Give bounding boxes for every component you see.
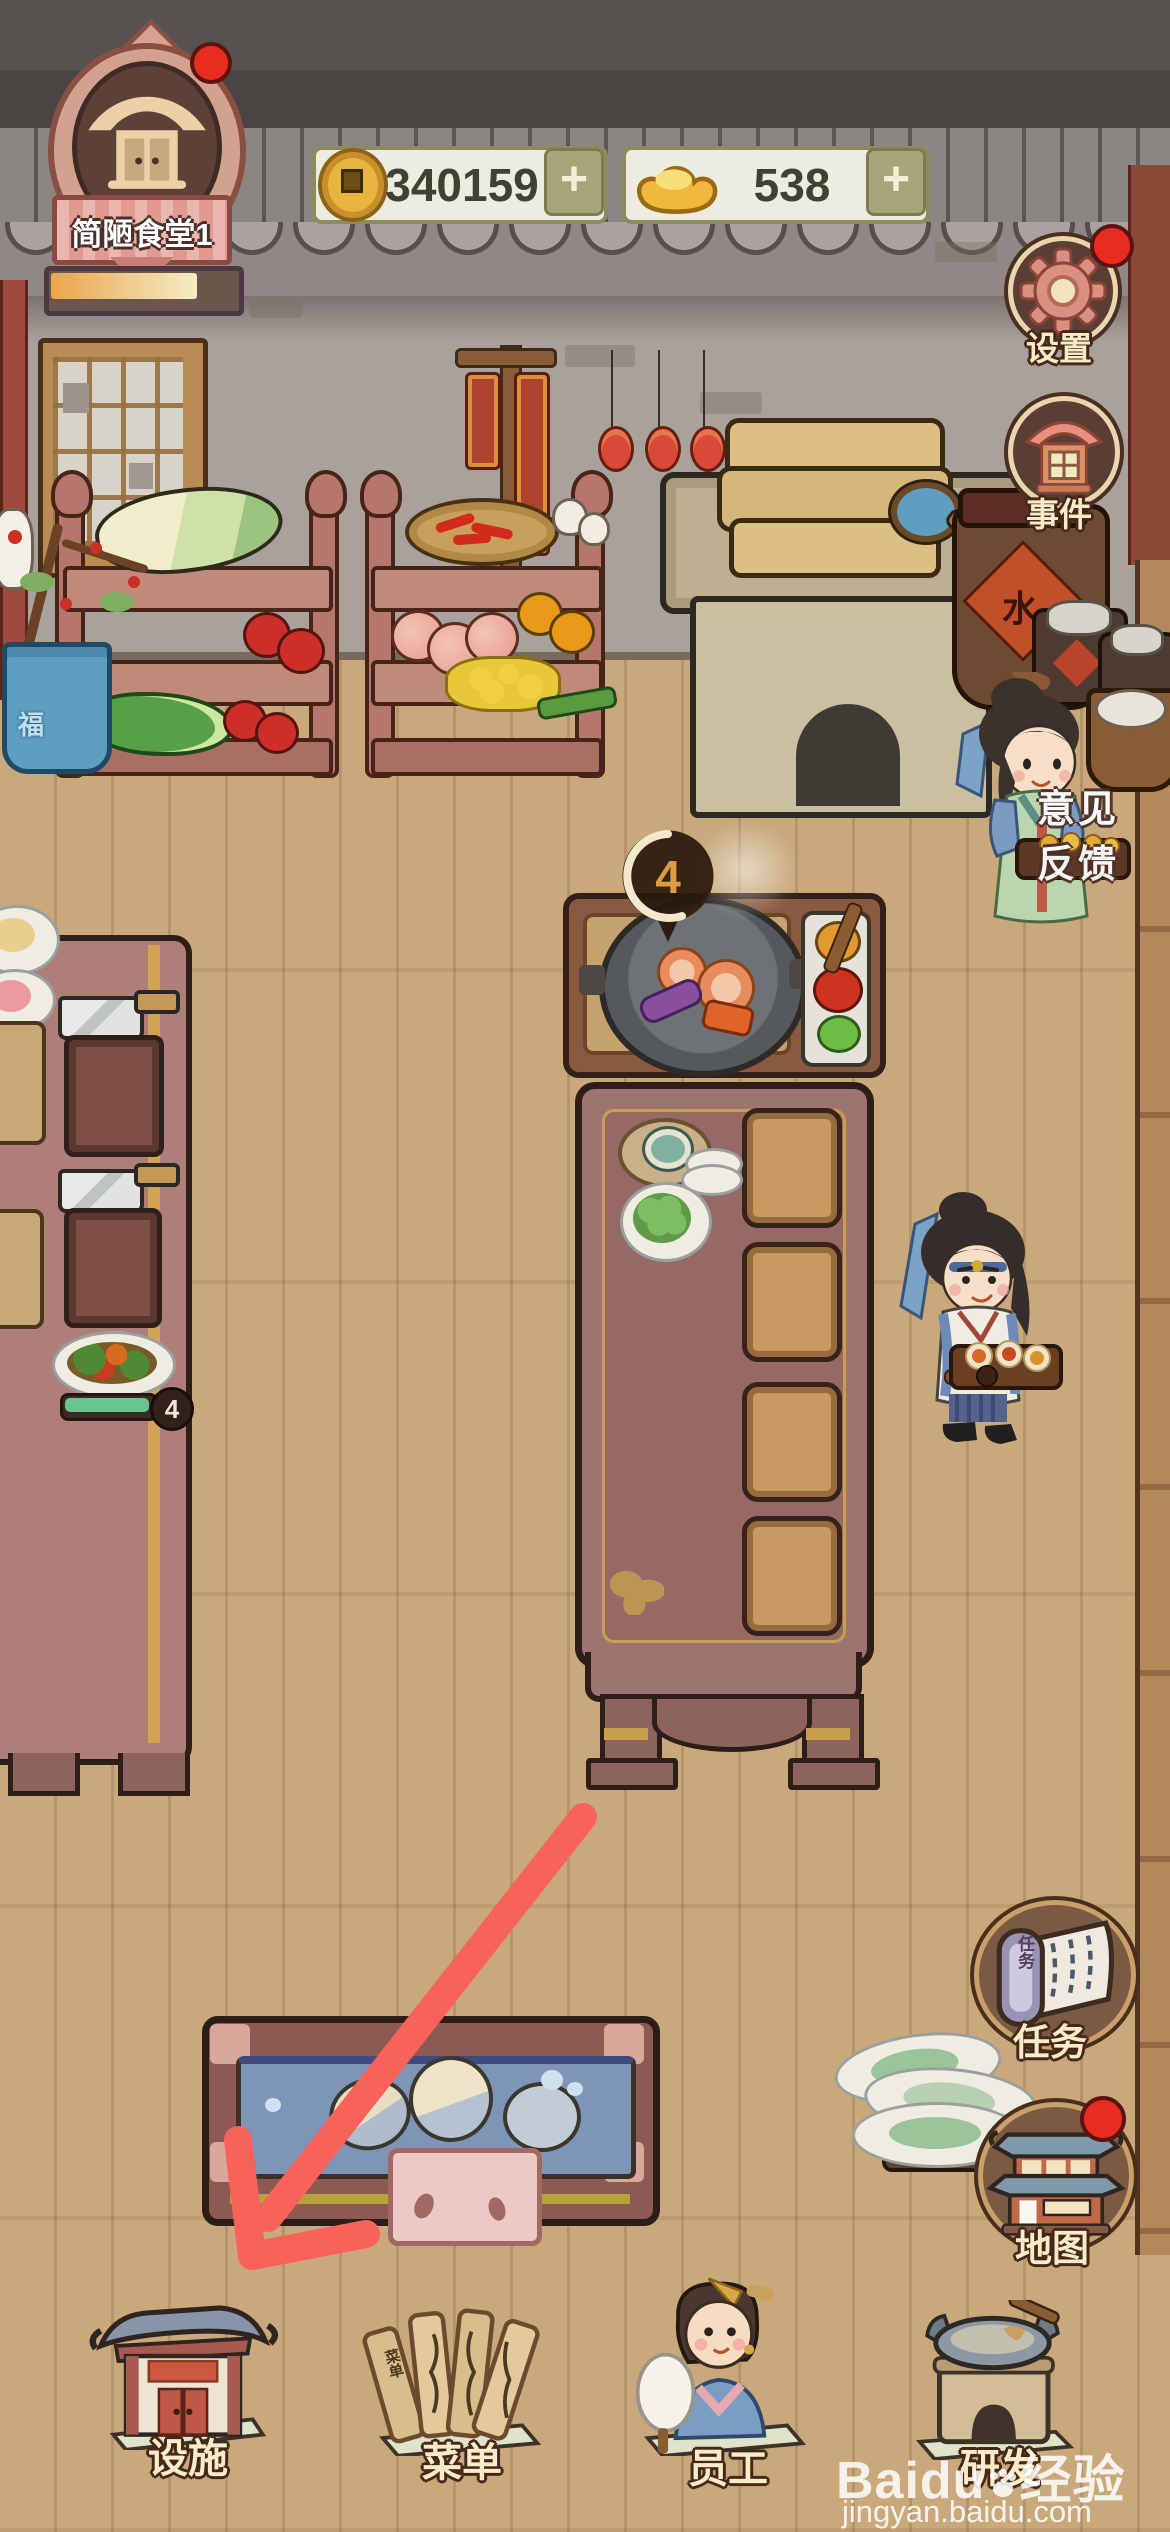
lantern-string — [658, 350, 660, 428]
green-food — [633, 1193, 691, 1243]
feedback-tab[interactable]: 意见 反馈 — [1028, 778, 1128, 882]
map-label: 地图 — [998, 2218, 1106, 2272]
broken-pane — [63, 383, 89, 413]
lantern-string — [611, 350, 613, 428]
condiment-tray — [801, 911, 871, 1067]
table-leg — [8, 1753, 80, 1796]
red-pepper — [434, 512, 475, 534]
salt-top — [1046, 600, 1112, 636]
towel — [388, 2148, 542, 2246]
wall-brick — [250, 300, 302, 318]
raw-meat — [0, 980, 31, 1012]
side-board — [0, 1021, 46, 1145]
game-screen: { "hud": { "restaurant": {"name": "简陋食堂1… — [0, 0, 1170, 2532]
wok-handle — [579, 965, 605, 995]
seat-cushion — [742, 1382, 842, 1502]
veggie-dish — [620, 1182, 712, 1262]
wall-brick — [935, 242, 997, 262]
gold-ingot-icon — [630, 150, 722, 214]
condiment-bowl-green — [817, 1015, 861, 1053]
table-foot — [788, 1758, 880, 1790]
settings-label: 设置 — [1014, 322, 1104, 370]
soaking-plate — [322, 2069, 419, 2159]
coin-hole — [341, 169, 363, 193]
watermark-url: jingyan.baidu.com — [842, 2494, 1166, 2530]
noodles — [0, 918, 35, 952]
settings-button[interactable]: 设置 — [1000, 228, 1132, 364]
feedback-line1: 意见 — [1028, 778, 1128, 833]
menu-button[interactable]: 菜单 菜单 — [360, 2296, 560, 2490]
pot-character: 福 — [11, 705, 51, 742]
tasks-label: 任务 — [996, 2012, 1104, 2066]
right-pillar — [1128, 165, 1170, 565]
red-lantern-icon — [598, 426, 634, 472]
gold-band — [806, 1728, 850, 1740]
soaking-plate — [402, 2049, 500, 2148]
stir-fry-food — [67, 1342, 157, 1384]
wall-brick — [700, 392, 762, 414]
seat-cushion — [742, 1516, 842, 1636]
rack-shelf — [371, 738, 603, 776]
red-pepper — [453, 533, 492, 546]
right-wall-wood — [1135, 560, 1170, 2255]
restaurant-name: 简陋食堂1 — [52, 209, 232, 254]
seat-cushion — [742, 1108, 842, 1228]
rack-shelf — [371, 566, 603, 612]
gold-band — [604, 1728, 648, 1740]
staff-label: 员工 — [653, 2436, 803, 2494]
staff-button[interactable]: 员工 — [625, 2276, 825, 2490]
add-ingots-button[interactable]: + — [866, 148, 926, 216]
soup-food — [889, 2117, 981, 2149]
cleaver-icon — [58, 990, 174, 1036]
dish-progress-track — [60, 1393, 158, 1421]
side-board — [0, 1209, 44, 1329]
towel-fold — [486, 2195, 509, 2223]
rack-finial — [360, 470, 402, 518]
salt-top — [1110, 624, 1164, 656]
table-foot — [586, 1758, 678, 1790]
scroll-icon-text: 任务 — [1013, 1935, 1037, 2005]
wok-station[interactable] — [563, 893, 886, 1078]
leaf-motif — [610, 1571, 664, 1615]
rack-finial — [305, 470, 347, 518]
events-button[interactable]: 事件 — [1000, 392, 1132, 532]
waiter-character — [885, 1188, 1065, 1450]
berry — [128, 576, 140, 588]
gold-ingot-amount: 538 — [722, 158, 862, 212]
bonsai-plant: 福 — [0, 512, 170, 782]
cutting-board — [64, 1208, 162, 1328]
add-coins-button[interactable]: + — [544, 148, 604, 216]
cutting-board — [64, 1035, 164, 1157]
bubble — [265, 2098, 281, 2112]
berry — [8, 530, 22, 544]
lantern-string — [703, 350, 705, 428]
pepper-tray — [405, 498, 559, 566]
watermark-brand-line: Baidu经验 — [836, 2438, 1166, 2496]
sign-stand-beam — [455, 348, 557, 368]
facilities-label: 设施 — [108, 2426, 268, 2484]
watermark: Baidu经验 jingyan.baidu.com — [836, 2438, 1166, 2532]
berry — [90, 542, 102, 554]
seat-cushion — [742, 1242, 842, 1362]
leaf — [20, 572, 54, 592]
stove-arch — [796, 704, 900, 806]
bubble — [567, 2082, 583, 2096]
copper-coin-amount: 340159 — [382, 158, 542, 212]
cleaver-icon — [58, 1163, 174, 1209]
berry — [60, 598, 72, 610]
bonsai-branch — [61, 538, 149, 573]
tasks-button[interactable]: 任务 任务 — [968, 1896, 1132, 2062]
condiment-bowl-red — [813, 967, 863, 1013]
hanging-sign — [465, 372, 501, 470]
progress-fill — [51, 273, 197, 299]
bubble-count: 4 — [620, 850, 716, 904]
staff-woman-icon — [625, 2276, 815, 2456]
bonsai-pot: 福 — [2, 642, 112, 774]
table-leg — [118, 1753, 190, 1796]
tomato — [277, 628, 325, 674]
wash-basin[interactable] — [202, 2016, 660, 2242]
settings-notification-dot — [1090, 224, 1134, 268]
wall-brick — [565, 345, 635, 367]
map-notification-dot — [1080, 2096, 1126, 2142]
leaf — [100, 592, 134, 612]
rack-finial — [51, 470, 93, 518]
cooking-bubble[interactable]: 4 — [620, 828, 716, 946]
copper-coin-bar: 340159 + — [312, 146, 608, 224]
gold-ingot-bar: 538 + — [622, 146, 930, 224]
dining-table[interactable] — [575, 1082, 872, 1782]
tomato — [255, 712, 299, 754]
menu-label: 菜单 — [382, 2430, 542, 2488]
facilities-button[interactable]: 设施 — [88, 2290, 288, 2490]
orange — [549, 610, 595, 654]
feedback-line2: 反馈 — [1028, 833, 1128, 888]
towel-fold — [410, 2190, 437, 2221]
prep-table[interactable]: 4 — [0, 935, 196, 1795]
ready-dish-count-badge: 4 — [150, 1387, 194, 1431]
events-label: 事件 — [1014, 488, 1104, 536]
map-button[interactable]: 地图 — [972, 2096, 1132, 2268]
ready-dish[interactable] — [52, 1331, 176, 1399]
dish-progress-fill — [65, 1398, 149, 1412]
restaurant-progress-bar — [44, 266, 244, 316]
badge-notification-dot — [190, 42, 232, 84]
table-carving — [652, 1694, 812, 1752]
bubble — [541, 2070, 563, 2090]
garlic — [578, 512, 610, 546]
copper-coin-icon — [318, 148, 388, 222]
